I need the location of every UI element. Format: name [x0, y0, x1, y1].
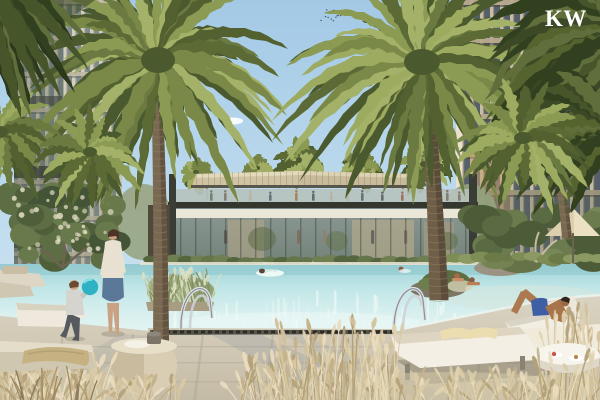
svg-text:KW: KW	[545, 6, 587, 31]
